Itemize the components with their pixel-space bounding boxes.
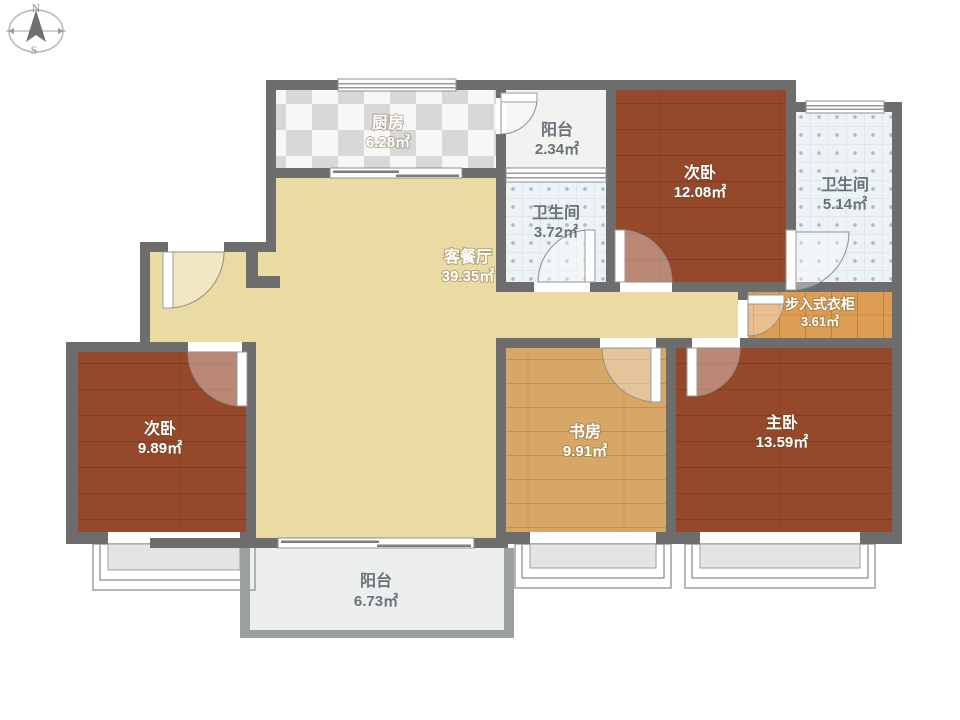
sliding-door-balcony-bottom <box>278 538 474 548</box>
compass-south-label: S <box>31 43 38 57</box>
window-bathroom-master <box>806 101 884 113</box>
label-kitchen-area: 6.28㎡ <box>366 133 410 151</box>
bay-window-study <box>515 544 671 588</box>
label-walk-in-closet-area: 3.61㎡ <box>801 314 839 329</box>
label-living-dining-name: 客餐厅 <box>444 247 492 266</box>
label-balcony-top-name: 阳台 <box>541 120 573 139</box>
label-walk-in-closet-name: 步入式衣柜 <box>785 296 855 312</box>
bay-window-bedroom-3 <box>93 544 255 590</box>
label-bedroom-3-name: 次卧 <box>144 419 176 438</box>
label-bathroom-guest-area: 3.72㎡ <box>534 223 578 241</box>
floor-plan: N S 厨房 6.28㎡ 阳台 2.34㎡ 次卧 12.08㎡ 卫生间 5.14… <box>0 0 960 720</box>
compass-north-label: N <box>32 1 41 15</box>
sliding-door-kitchen <box>330 168 462 178</box>
label-study-name: 书房 <box>569 422 601 441</box>
label-bathroom-guest-name: 卫生间 <box>532 203 580 222</box>
label-balcony-bottom-area: 6.73㎡ <box>354 592 398 610</box>
room-balcony-bottom <box>248 548 504 632</box>
label-bathroom-master-name: 卫生间 <box>821 175 869 194</box>
label-bathroom-master-area: 5.14㎡ <box>823 195 867 213</box>
label-master-bedroom-area: 13.59㎡ <box>756 433 809 451</box>
floor-plan-svg: N S 厨房 6.28㎡ 阳台 2.34㎡ 次卧 12.08㎡ 卫生间 5.14… <box>0 0 960 720</box>
window-kitchen <box>338 79 456 91</box>
label-balcony-bottom-name: 阳台 <box>360 571 392 590</box>
label-kitchen-name: 厨房 <box>372 113 404 132</box>
label-bedroom-2-name: 次卧 <box>684 163 716 182</box>
bay-window-master-bedroom <box>685 544 875 588</box>
label-living-dining-area: 39.35㎡ <box>442 267 495 285</box>
label-study-area: 9.91㎡ <box>563 442 607 460</box>
window-balcony-bathroom <box>506 168 606 182</box>
label-bedroom-2-area: 12.08㎡ <box>674 183 727 201</box>
compass: N S <box>6 1 66 57</box>
label-bedroom-3-area: 9.89㎡ <box>138 439 182 457</box>
label-balcony-top-area: 2.34㎡ <box>535 140 579 158</box>
label-master-bedroom-name: 主卧 <box>766 413 798 432</box>
